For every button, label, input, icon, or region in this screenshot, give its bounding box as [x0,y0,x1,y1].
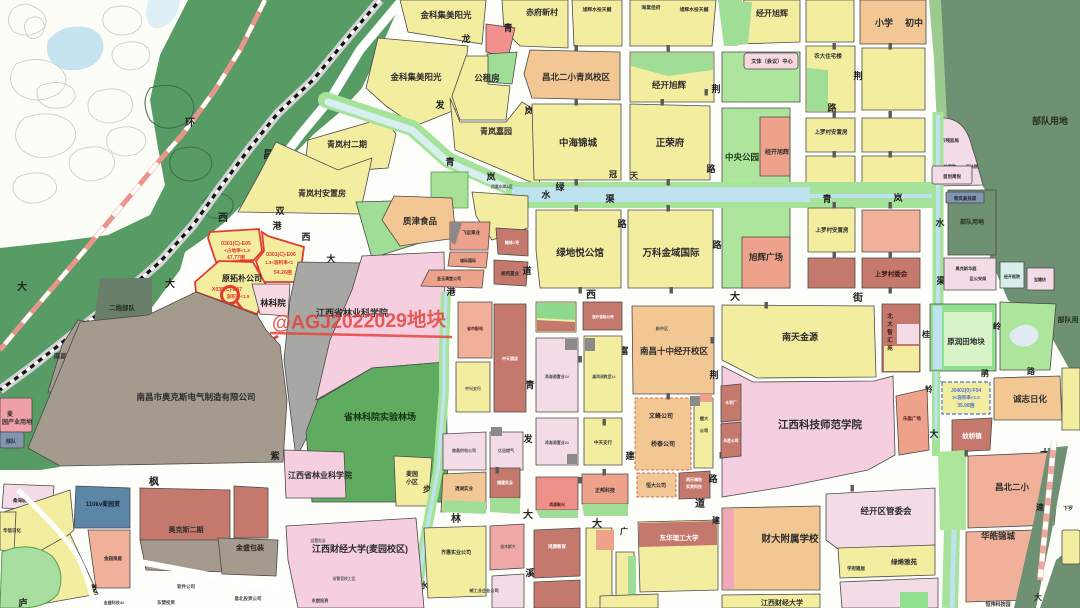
svg-text:步: 步 [423,484,431,494]
svg-text:岭: 岭 [993,321,1001,331]
svg-text:绿地悦公馆: 绿地悦公馆 [556,247,604,259]
svg-text:经开区管委会: 经开区管委会 [860,506,912,516]
svg-text:中兴支行: 中兴支行 [465,385,481,391]
svg-text:城际国际: 城际国际 [460,257,476,263]
svg-text:小区: 小区 [405,478,418,486]
svg-text:冠: 冠 [609,170,617,179]
svg-text:庐: 庐 [18,597,27,608]
svg-text:华皓锦城: 华皓锦城 [981,531,1016,541]
svg-text:恒大公司: 恒大公司 [646,482,666,489]
svg-text:大: 大 [887,320,893,328]
svg-text:中天酒店: 中天酒店 [502,355,518,361]
svg-text:齐惠实业公司: 齐惠实业公司 [441,549,471,556]
svg-text:桥泰公司: 桥泰公司 [651,440,675,448]
svg-text:岚: 岚 [893,192,902,203]
svg-text:新中区: 新中区 [656,325,669,332]
svg-text:大: 大 [1034,592,1042,602]
svg-text:凤凰水岸A区: 凤凰水岸A区 [491,184,513,189]
svg-text:枫: 枫 [149,475,159,488]
svg-text:3<容积率<1.0: 3<容积率<1.0 [952,394,980,401]
svg-text:金玉满堂公司: 金玉满堂公司 [436,275,461,281]
svg-text:大: 大 [165,277,175,290]
svg-text:鹃: 鹃 [981,368,989,378]
svg-text:鸿海源置业1#: 鸿海源置业1# [544,373,570,379]
svg-text:绿: 绿 [555,181,565,192]
svg-text:林: 林 [451,512,462,525]
svg-text:南天金源: 南天金源 [782,331,818,342]
svg-text:昌北二小青岚校区: 昌北二小青岚校区 [542,72,611,82]
svg-text:亿迅燃气: 亿迅燃气 [498,447,514,453]
svg-text:港: 港 [272,220,282,231]
svg-text:省警官校工区: 省警官校工区 [332,576,356,581]
svg-text:青: 青 [525,379,534,390]
svg-text:赢鸿调教室1#: 赢鸿调教室1# [592,374,616,379]
svg-text:广: 广 [620,526,628,536]
svg-text:青: 青 [445,156,454,167]
svg-text:水: 水 [935,217,945,228]
svg-text:公司: 公司 [700,427,708,434]
svg-text:南昌供电公司: 南昌供电公司 [452,447,476,453]
svg-text:天: 天 [630,171,639,180]
svg-text:大: 大 [17,280,27,293]
svg-text:双: 双 [275,206,284,216]
svg-text:青: 青 [822,193,831,204]
svg-text:岚: 岚 [486,171,495,182]
svg-text:质津食品: 质津食品 [403,216,438,226]
svg-text:荆: 荆 [711,83,720,94]
svg-text:水: 水 [541,189,551,200]
svg-text:乐盈广场: 乐盈广场 [903,415,921,422]
svg-text:公租房: 公租房 [474,73,500,83]
svg-text:绿烯雅苑: 绿烯雅苑 [891,557,918,566]
svg-text:恒伟科技园: 恒伟科技园 [985,601,1010,608]
svg-text:永胜公司: 永胜公司 [722,438,738,443]
svg-text:龙: 龙 [460,33,470,44]
svg-text:麦: 麦 [7,410,14,418]
svg-text:西: 西 [218,212,228,224]
svg-text:西: 西 [586,289,596,301]
svg-text:0301(C)-E05: 0301(C)-E05 [221,241,251,247]
svg-text:J0402(0)·F04: J0402(0)·F04 [951,388,982,394]
svg-text:运营实业: 运营实业 [310,538,325,543]
svg-text:街: 街 [852,291,863,304]
svg-text:金科集美阳光: 金科集美阳光 [419,10,472,20]
svg-text:赤府新村: 赤府新村 [526,7,558,17]
svg-text:煜大: 煜大 [700,415,709,422]
svg-text:飞远果业: 飞远果业 [462,229,480,236]
svg-text:福建实业: 福建实业 [496,479,513,485]
svg-text:东塑投资: 东塑投资 [157,599,175,606]
svg-text:奥克斯华庭: 奥克斯华庭 [956,265,978,272]
svg-text:青: 青 [503,22,512,33]
svg-text:苑: 苑 [887,344,893,352]
svg-text:大: 大 [523,508,533,521]
svg-text:@AGJ2022029地块: @AGJ2022029地块 [272,308,447,334]
svg-text:农大住宅楼: 农大住宅楼 [813,52,842,60]
svg-text:桂: 桂 [921,329,930,339]
svg-text:中央公园: 中央公园 [725,152,759,162]
svg-text:发: 发 [522,433,533,444]
svg-text:鸿海源置业2#: 鸿海源置业2# [544,439,570,445]
svg-text:昌北投资公司: 昌北投资公司 [235,595,262,602]
svg-text:二炮部队: 二炮部队 [109,303,136,312]
svg-text:上罗村安置房: 上罗村安置房 [814,128,848,136]
svg-text:南昌十中经开校区: 南昌十中经开校区 [640,346,709,356]
svg-text:南昌市奥克斯电气制造有限公司: 南昌市奥克斯电气制造有限公司 [136,392,255,402]
svg-text:小学: 小学 [874,17,893,28]
svg-text:道: 道 [522,265,531,276]
svg-text:械工业企业公司: 械工业企业公司 [469,587,498,594]
svg-text:两乐福地: 两乐福地 [686,476,702,482]
svg-text:东塑投资: 东塑投资 [312,597,330,604]
svg-text:翰林1号: 翰林1号 [505,239,519,245]
svg-text:江西财经大学: 江西财经大学 [761,598,803,607]
svg-text:正荣府: 正荣府 [656,137,685,149]
svg-text:透湖实业: 透湖实业 [455,485,473,492]
svg-text:荆: 荆 [709,369,718,380]
svg-text:下罗: 下罗 [1063,505,1073,512]
svg-text:江西财经大学(麦园校区): 江西财经大学(麦园校区) [312,543,408,554]
svg-text:青岚村二期: 青岚村二期 [327,139,367,149]
svg-text:财大附属学校: 财大附属学校 [760,533,819,545]
svg-text:软件公司: 软件公司 [177,583,195,590]
svg-text:35.98亩: 35.98亩 [957,402,975,409]
svg-text:旭辉广场: 旭辉广场 [748,252,784,262]
svg-text:54.26亩: 54.26亩 [274,268,292,276]
svg-text:园产业用地: 园产业用地 [2,418,32,426]
svg-text:0301(C)-E06: 0301(C)-E06 [266,252,296,258]
svg-text:鸿源聚兴: 鸿源聚兴 [548,501,565,507]
svg-text:诚志日化: 诚志日化 [1013,394,1048,404]
svg-text:紫: 紫 [270,450,279,461]
svg-text:学府雅居: 学府雅居 [847,565,865,572]
svg-text:金盛科技4#: 金盛科技4# [103,599,125,605]
svg-text:文峰公司: 文峰公司 [648,412,673,420]
svg-text:部队用地: 部队用地 [960,218,984,226]
svg-text:道: 道 [695,497,705,510]
svg-text:水表厂: 水表厂 [724,400,737,405]
svg-text:经开旭辉: 经开旭辉 [765,148,789,156]
svg-text:原拓朴公司: 原拓朴公司 [222,273,262,283]
svg-text:港: 港 [446,286,456,297]
svg-text:蚊桥镇: 蚊桥镇 [962,431,982,440]
svg-text:<占地率<1.3: <占地率<1.3 [224,247,250,254]
svg-text:1.3<容积率<1: 1.3<容积率<1 [265,259,294,266]
svg-text:江西省林业科学院: 江西省林业科学院 [288,470,352,480]
svg-text:经开旭辉: 经开旭辉 [756,8,788,18]
svg-text:经开旭辉: 经开旭辉 [652,80,687,90]
svg-text:奥克斯二期: 奥克斯二期 [169,525,204,534]
svg-text:初中: 初中 [905,17,923,28]
svg-text:宝婕纺: 宝婕纺 [1034,276,1046,282]
svg-text:47.77亩: 47.77亩 [227,253,245,261]
svg-text:市残监局: 市残监局 [941,137,959,144]
svg-text:路: 路 [712,239,722,250]
svg-text:林科院: 林科院 [260,298,286,308]
svg-text:经开医院: 经开医院 [1004,273,1020,279]
svg-text:溪: 溪 [525,567,535,578]
svg-text:医疗保险公司: 医疗保险公司 [592,314,614,319]
svg-text:西: 西 [301,232,310,242]
svg-text:速: 速 [1036,502,1044,512]
svg-text:北: 北 [887,312,893,320]
svg-text:建: 建 [625,450,635,461]
svg-text:首创禹悦: 首创禹悦 [943,173,961,180]
svg-text:区公安局: 区公安局 [970,275,987,282]
svg-text:部队用地: 部队用地 [1032,115,1068,126]
svg-text:上罗村安置房: 上罗村安置房 [815,226,849,234]
svg-text:环: 环 [185,117,195,129]
svg-text:华信日化: 华信日化 [3,527,21,534]
svg-text:省林科院实验林场: 省林科院实验林场 [343,411,416,422]
svg-text:佳木斯大: 佳木斯大 [500,544,515,549]
svg-text:麦园: 麦园 [406,470,418,478]
svg-text:汇: 汇 [887,336,893,344]
svg-text:文体（会议）中心: 文体（会议）中心 [751,57,793,65]
svg-text:建: 建 [711,515,721,525]
svg-text:发: 发 [434,99,445,110]
svg-text:江西科技师范学院: 江西科技师范学院 [778,418,862,431]
svg-text:路: 路 [1027,366,1036,376]
svg-text:路: 路 [827,102,837,113]
svg-text:青岚村安置房: 青岚村安置房 [298,188,346,198]
svg-text:昌北二小: 昌北二小 [995,482,1030,492]
svg-text:路: 路 [708,473,718,484]
svg-text:楼苑置业: 楼苑置业 [501,270,519,277]
svg-text:中海锦城: 中海锦城 [559,137,598,149]
svg-text:路: 路 [706,163,716,174]
svg-text:海棠佳府: 海棠佳府 [641,4,660,11]
svg-text:鸿源教育: 鸿源教育 [548,543,566,550]
svg-text:正邦科技: 正邦科技 [595,487,616,494]
svg-text:实美科技: 实美科技 [686,483,703,489]
svg-text:省市配电: 省市配电 [466,325,483,331]
svg-text:旭辉水投天樾: 旭辉水投天樾 [679,6,709,13]
svg-text:中天支行: 中天支行 [594,439,612,446]
svg-text:东华理工大学: 东华理工大学 [660,533,700,542]
svg-text:金科集美阳光: 金科集美阳光 [389,72,442,82]
svg-text:青岚嘉园: 青岚嘉园 [480,126,512,136]
svg-text:部队: 部队 [6,438,17,445]
svg-text:路: 路 [617,218,627,229]
svg-text:智: 智 [887,328,893,336]
svg-text:旭辉水投天樾: 旭辉水投天樾 [582,6,612,13]
svg-text:金园泉庭: 金园泉庭 [103,555,122,562]
svg-text:110kv麦园变: 110kv麦园变 [86,500,120,508]
svg-text:青岚高排渠: 青岚高排渠 [954,195,977,202]
svg-text:大: 大 [730,290,740,303]
svg-text:金盛包装: 金盛包装 [235,543,264,552]
svg-text:渠: 渠 [604,193,615,204]
svg-text:部队用: 部队用 [1058,315,1079,324]
svg-text:大: 大 [929,428,938,439]
svg-text:荆: 荆 [853,70,862,81]
svg-text:万科金域国际: 万科金域国际 [641,247,700,259]
svg-text:上罗村委会: 上罗村委会 [875,269,908,278]
svg-text:原润田地块: 原润田地块 [947,336,985,346]
